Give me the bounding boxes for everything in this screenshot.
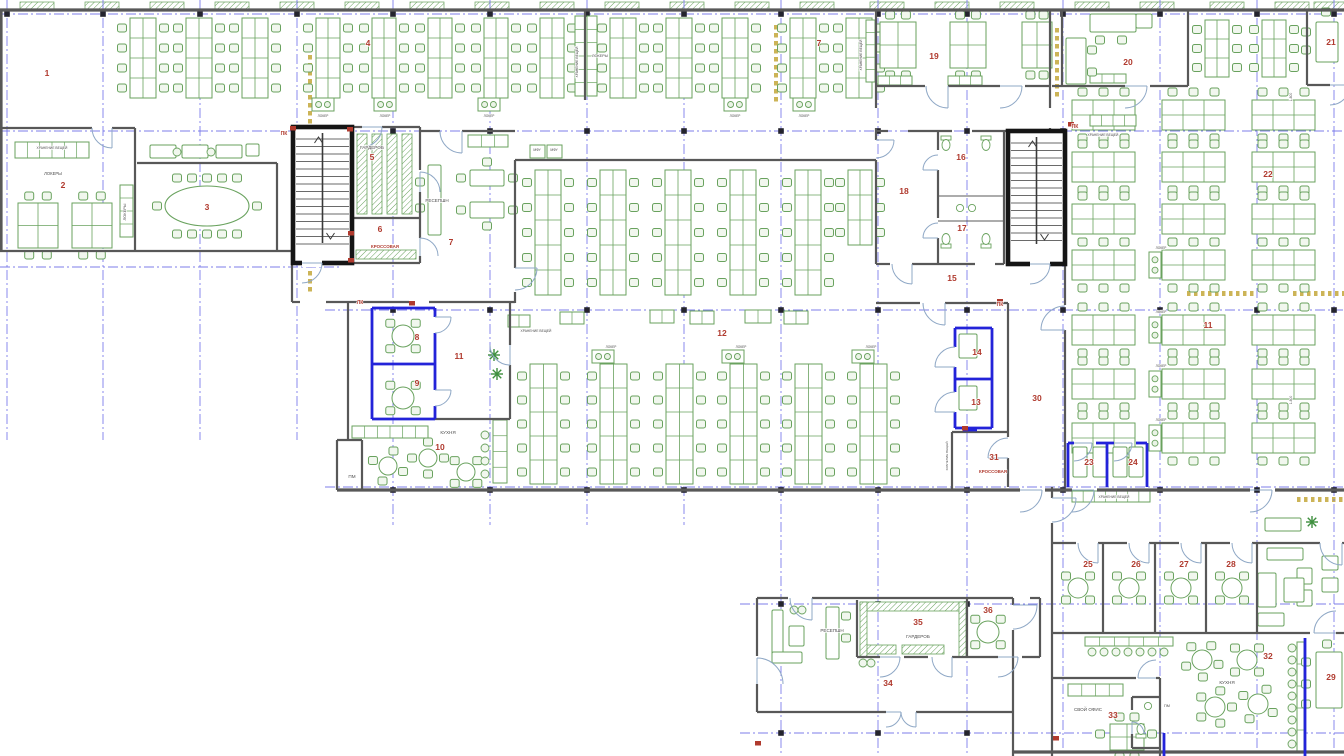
room-number: 31 bbox=[989, 452, 999, 462]
annotation-label: ХРАНЕНИЕ ВЕЩЕЙ bbox=[1099, 495, 1131, 499]
annotation-label: КУХНЯ bbox=[440, 430, 455, 435]
annotation-label: МФУ bbox=[533, 148, 541, 152]
red-room-label: КРОССОВАЯ bbox=[979, 469, 1007, 474]
annotation-label: ЛОКЕР bbox=[799, 114, 810, 118]
annotation-label: ЛОКЕР bbox=[380, 114, 391, 118]
room-number: 23 bbox=[1084, 457, 1094, 467]
room-number: 1 bbox=[45, 68, 50, 78]
red-room-label: ЛК bbox=[357, 300, 365, 306]
annotation-label: 1.800 bbox=[1289, 396, 1293, 405]
room-number: 21 bbox=[1326, 37, 1336, 47]
annotation-label: ХРАНЕНИЕ ВЕЩЕЙ bbox=[575, 46, 579, 78]
room-number: 15 bbox=[947, 273, 957, 283]
room-number: 16 bbox=[956, 152, 966, 162]
annotation-label: ЛОКЕР bbox=[1156, 310, 1167, 314]
room-number: 18 bbox=[899, 186, 909, 196]
room-number: 11 bbox=[455, 351, 464, 361]
annotation-label: ЛОКЕР bbox=[866, 345, 877, 349]
annotation-label: ЛОКЕР bbox=[484, 114, 495, 118]
red-room-label: ПК bbox=[997, 302, 1005, 308]
room-number: 25 bbox=[1083, 559, 1093, 569]
room-number: 30 bbox=[1032, 393, 1042, 403]
annotation-label: ЛОКЕР bbox=[1156, 418, 1167, 422]
annotation-label: ХРАНЕНИЕ ВЕЩЕЙ bbox=[521, 329, 553, 333]
room-number: 5 bbox=[370, 152, 375, 162]
room-number: 28 bbox=[1226, 559, 1236, 569]
room-number: 27 bbox=[1179, 559, 1189, 569]
annotation-label: ЛОКЕР bbox=[1156, 364, 1167, 368]
room-number: 20 bbox=[1123, 57, 1133, 67]
red-room-label: КРОССОВАЯ bbox=[371, 244, 399, 249]
room-number: 32 bbox=[1263, 651, 1273, 661]
red-room-label: ПК bbox=[281, 131, 289, 137]
room-number: 8 bbox=[415, 332, 420, 342]
room-number: 14 bbox=[972, 347, 982, 357]
annotation-label: ПМ bbox=[1164, 704, 1170, 708]
annotation-label: ХРАНЕНИЕ ВЕЩЕЙ bbox=[945, 442, 949, 471]
room-number: 22 bbox=[1263, 169, 1273, 179]
annotation-label: ЛОКЕРЫ bbox=[44, 171, 62, 176]
annotation-label: ЛОКЕРЫ bbox=[592, 54, 609, 58]
annotation-label: ПМ bbox=[348, 474, 355, 479]
room-number: 6 bbox=[378, 224, 383, 234]
red-room-label: ПК bbox=[1072, 124, 1080, 130]
annotation-label: КУХНЯ bbox=[1219, 680, 1234, 685]
room-number: 26 bbox=[1131, 559, 1141, 569]
annotation-label: 1.800 bbox=[1289, 93, 1293, 102]
annotation-label: ЛОКЕР bbox=[730, 114, 741, 118]
annotation-label: ГАРДЕРОБ bbox=[360, 145, 384, 150]
room-number: 36 bbox=[983, 605, 993, 615]
room-number: 7 bbox=[817, 38, 822, 48]
room-number: 33 bbox=[1108, 710, 1118, 720]
room-number: 7 bbox=[449, 237, 454, 247]
room-number: 17 bbox=[957, 223, 967, 233]
room-number: 13 bbox=[971, 397, 981, 407]
annotation-label: МФУ bbox=[550, 148, 558, 152]
room-number: 35 bbox=[913, 617, 923, 627]
room-number: 24 bbox=[1128, 457, 1138, 467]
room-number: 2 bbox=[61, 180, 66, 190]
room-number: 34 bbox=[883, 678, 893, 688]
annotation-label: РЕСЕПШН bbox=[425, 198, 448, 203]
annotation-label: ХРАНЕНИЕ ВЕЩЕЙ bbox=[859, 39, 863, 71]
floor-plan-page: 1234567789101111121314151617181920212223… bbox=[0, 0, 1344, 756]
annotation-label: РЕСЕПШН bbox=[820, 628, 843, 633]
room-number: 9 bbox=[415, 378, 420, 388]
annotation-label: ЛОКЕР bbox=[606, 345, 617, 349]
room-number: 4 bbox=[366, 38, 371, 48]
room-number: 29 bbox=[1326, 672, 1336, 682]
annotation-label: ЛОКЕР bbox=[318, 114, 329, 118]
room-number: 10 bbox=[435, 442, 445, 452]
annotation-label: ЛОКЕР bbox=[1156, 246, 1167, 250]
annotation-label: ЛОКЕРЫ bbox=[122, 203, 127, 220]
annotation-label: ГАРДЕРОБ bbox=[906, 634, 930, 639]
floor-plan-drawing: 1234567789101111121314151617181920212223… bbox=[0, 0, 1344, 756]
room-number: 12 bbox=[717, 328, 727, 338]
annotation-label: ЛОКЕР bbox=[736, 345, 747, 349]
annotation-label: СВОЙ ОФИС bbox=[1074, 705, 1103, 712]
room-number: 3 bbox=[205, 202, 210, 212]
furniture-layer bbox=[15, 8, 1342, 756]
annotation-label: ХРАНЕНИЕ ВЕЩЕЙ bbox=[1088, 133, 1120, 137]
annotation-label: ХРАНЕНИЕ ВЕЩЕЙ bbox=[37, 146, 69, 150]
room-number: 19 bbox=[929, 51, 939, 61]
room-number: 11 bbox=[1204, 320, 1213, 330]
